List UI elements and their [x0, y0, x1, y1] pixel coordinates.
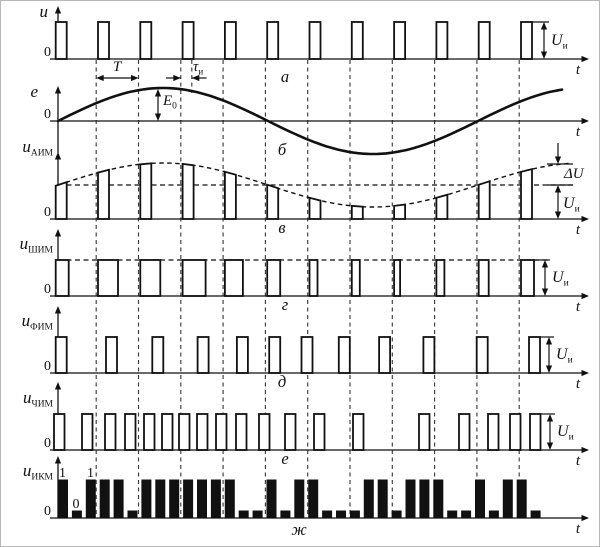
- time-axis-label: t: [576, 222, 581, 238]
- e0-arrow-arrowhead-icon: [155, 89, 161, 97]
- pcm-bar-zero: [323, 511, 332, 518]
- axis-var-label-base: u: [22, 137, 31, 156]
- axis-var-label-sub: ФИМ: [30, 323, 53, 333]
- axis-var-label-base: u: [20, 234, 29, 253]
- pcm-bar-zero: [128, 511, 137, 518]
- aim-pulse: [352, 206, 363, 219]
- delta-label: ΔU: [563, 166, 585, 182]
- ppm-pulse: [339, 337, 350, 373]
- amplitude-arrow-arrowhead-icon: [541, 22, 547, 30]
- pwm-pulse: [352, 260, 360, 296]
- carrier-pulse: [98, 22, 109, 59]
- time-axis-arrowhead-icon: [582, 56, 590, 62]
- pcm-bar-one: [184, 480, 193, 518]
- pfm-pulse: [125, 414, 136, 450]
- aim-pulse: [436, 195, 447, 219]
- axis-var-label-sub: АИМ: [31, 149, 54, 159]
- axis-var-label-sub: ЧИМ: [32, 400, 54, 410]
- aim-pulse: [98, 170, 109, 219]
- bit-label: 0: [73, 497, 80, 512]
- aim-pulse: [140, 163, 151, 219]
- pwm-pulse: [310, 260, 318, 296]
- axis-var-label-base: u: [23, 461, 32, 480]
- pcm-bar-one: [198, 480, 207, 518]
- pulse-width-label: τи: [193, 59, 203, 77]
- pcm-bar-one: [295, 480, 304, 518]
- amplitude-arrow-arrowhead-icon: [541, 52, 547, 60]
- axis-var-label-sub: ИКМ: [31, 473, 53, 483]
- amplitude-arrow-arrowhead-icon: [547, 443, 553, 451]
- panel-letter: ж: [291, 520, 307, 539]
- panel-letter: д: [278, 372, 286, 391]
- carrier-pulse: [140, 22, 151, 59]
- tau-arrowhead-icon: [173, 75, 181, 81]
- pcm-bar-one: [114, 480, 123, 518]
- carrier-pulse: [352, 22, 363, 59]
- amplitude-label: Uи: [552, 269, 569, 289]
- pwm-pulse: [183, 260, 206, 296]
- axis-var-label: uАИМ: [22, 137, 53, 159]
- period-arrow-arrowhead-icon: [96, 75, 104, 81]
- pcm-bar-one: [225, 480, 234, 518]
- carrier-pulse: [267, 22, 278, 59]
- carrier-pulse: [56, 22, 67, 59]
- pfm-pulse: [510, 414, 521, 450]
- pwm-pulse: [479, 260, 489, 296]
- zero-label: 0: [44, 107, 51, 122]
- pfm-pulse: [54, 414, 65, 450]
- panel-letter: г: [282, 295, 289, 314]
- pcm-bar-zero: [462, 511, 471, 518]
- ppm-pulse: [106, 337, 117, 373]
- pcm-bar-one: [59, 480, 68, 518]
- panel-letter: е: [281, 449, 288, 468]
- time-axis-label: t: [576, 124, 581, 140]
- pcm-bar-zero: [239, 511, 248, 518]
- ppm-pulse: [269, 337, 280, 373]
- time-axis-arrowhead-icon: [582, 216, 590, 222]
- amplitude-arrow-arrowhead-icon: [547, 414, 553, 422]
- amplitude-label: Uи: [556, 346, 573, 366]
- amplitude-arrow-arrowhead-icon: [555, 212, 561, 220]
- amplitude-arrow-arrowhead-icon: [555, 185, 561, 193]
- pulse-modulation-figure: t0uTτиUиt0eE0t0uАИМΔUUиt0uШИМUиt0uФИМUиt…: [0, 0, 600, 547]
- time-axis-label: t: [576, 521, 581, 537]
- pcm-bar-one: [86, 480, 95, 518]
- pcm-bar-one: [420, 480, 429, 518]
- pfm-pulse: [144, 414, 155, 450]
- pulse-width-label-sub: и: [198, 67, 203, 77]
- pfm-pulse: [236, 414, 247, 450]
- axis-var-label: uФИМ: [22, 311, 54, 333]
- aim-pulse: [225, 172, 236, 219]
- pwm-pulse: [436, 260, 444, 296]
- aim-pulse: [56, 182, 67, 219]
- pcm-bar-one: [267, 480, 276, 518]
- pfm-pulse: [419, 414, 430, 450]
- e0-label-sub: 0: [172, 102, 177, 112]
- pcm-bar-one: [156, 480, 165, 518]
- value-axis-arrowhead-icon: [55, 86, 61, 94]
- amplitude-label-sub: и: [569, 433, 574, 443]
- aim-pulse: [479, 181, 490, 219]
- panel-letter: в: [278, 218, 285, 237]
- panel-letter: а: [281, 67, 289, 86]
- ppm-pulse: [198, 337, 209, 373]
- pfm-pulse: [216, 414, 227, 450]
- value-axis-arrowhead-icon: [55, 229, 61, 237]
- pcm-bar-zero: [448, 511, 457, 518]
- amplitude-arrow-arrowhead-icon: [542, 289, 548, 297]
- bit-label: 1: [59, 466, 66, 481]
- aim-pulse: [310, 198, 321, 219]
- zero-label: 0: [44, 282, 51, 297]
- carrier-pulse: [310, 22, 321, 59]
- e0-label: E0: [162, 93, 177, 112]
- e0-label-base: E: [162, 93, 172, 109]
- amplitude-label: Uи: [563, 195, 580, 215]
- amplitude-label: Uи: [557, 423, 574, 443]
- axis-var-label: uЧИМ: [23, 388, 54, 410]
- axis-var-label-base: u: [22, 311, 31, 330]
- pcm-bar-zero: [350, 511, 359, 518]
- pfm-pulse: [259, 414, 270, 450]
- ppm-pulse: [237, 337, 248, 373]
- axis-var-label: uШИМ: [20, 234, 54, 256]
- ppm-pulse: [529, 337, 540, 373]
- ppm-pulse: [423, 337, 434, 373]
- carrier-pulse: [436, 22, 447, 59]
- amplitude-arrow-arrowhead-icon: [542, 260, 548, 268]
- axis-var-label: uИКМ: [23, 461, 54, 483]
- axis-var-label-sub: ШИМ: [28, 246, 53, 256]
- pcm-bar-one: [309, 480, 318, 518]
- pfm-pulse: [162, 414, 173, 450]
- pwm-pulse: [521, 260, 534, 296]
- pcm-bar-zero: [489, 511, 498, 518]
- pcm-bar-one: [100, 480, 109, 518]
- amplitude-label-sub: и: [568, 356, 573, 366]
- pfm-pulse: [179, 414, 190, 450]
- pcm-bar-one: [211, 480, 220, 518]
- ppm-pulse: [152, 337, 163, 373]
- pfm-pulse: [105, 414, 116, 450]
- ppm-pulse: [379, 337, 390, 373]
- pfm-pulse: [459, 414, 470, 450]
- pcm-bar-zero: [281, 511, 290, 518]
- pwm-pulse: [225, 260, 243, 296]
- pcm-bar-zero: [392, 511, 401, 518]
- value-axis-arrowhead-icon: [55, 306, 61, 314]
- value-axis-arrowhead-icon: [55, 6, 61, 14]
- amplitude-label: Uи: [551, 32, 568, 52]
- panel-letter: б: [278, 140, 287, 159]
- zero-label: 0: [44, 359, 51, 374]
- carrier-pulse: [521, 22, 532, 59]
- pcm-bar-zero: [337, 511, 346, 518]
- time-axis-arrowhead-icon: [582, 118, 590, 124]
- pcm-bar-zero: [72, 511, 81, 518]
- carrier-pulse: [394, 22, 405, 59]
- zero-label: 0: [44, 436, 51, 451]
- pcm-bar-one: [517, 480, 526, 518]
- zero-label: 0: [44, 45, 51, 60]
- pfm-pulse: [314, 414, 325, 450]
- carrier-pulse: [225, 22, 236, 59]
- axis-var-label: e: [30, 82, 38, 101]
- time-axis-label: t: [576, 299, 581, 315]
- pfm-pulse: [82, 414, 93, 450]
- time-axis-arrowhead-icon: [582, 515, 590, 521]
- amplitude-label-sub: и: [563, 42, 568, 52]
- delta-arrowhead-icon: [555, 157, 561, 165]
- amplitude-arrow-arrowhead-icon: [546, 337, 552, 345]
- ppm-pulse: [302, 337, 313, 373]
- e0-arrow-arrowhead-icon: [155, 114, 161, 122]
- ppm-pulse: [477, 337, 488, 373]
- pcm-bar-one: [378, 480, 387, 518]
- aim-pulse: [394, 205, 405, 220]
- pcm-bar-one: [503, 480, 512, 518]
- pcm-bar-one: [364, 480, 373, 518]
- aim-pulse: [267, 185, 278, 219]
- pfm-pulse: [197, 414, 208, 450]
- pwm-pulse: [140, 260, 160, 296]
- pcm-bar-one: [170, 480, 179, 518]
- carrier-pulse: [479, 22, 490, 59]
- axis-var-label: u: [40, 2, 49, 21]
- period-arrow-arrowhead-icon: [131, 75, 139, 81]
- time-axis-label: t: [576, 62, 581, 78]
- amplitude-label-sub: и: [564, 279, 569, 289]
- time-axis-arrowhead-icon: [582, 293, 590, 299]
- value-axis-arrowhead-icon: [55, 152, 61, 160]
- zero-label: 0: [44, 504, 51, 519]
- bit-label: 1: [87, 466, 94, 481]
- time-axis-label: t: [576, 453, 581, 469]
- value-axis-arrowhead-icon: [55, 456, 61, 464]
- pwm-pulse: [56, 260, 69, 296]
- time-axis-arrowhead-icon: [582, 370, 590, 376]
- zero-label: 0: [44, 205, 51, 220]
- time-axis-label: t: [576, 376, 581, 392]
- amplitude-arrow-arrowhead-icon: [546, 366, 552, 374]
- pcm-bar-one: [476, 480, 485, 518]
- pfm-pulse: [530, 414, 541, 450]
- pfm-pulse: [353, 414, 364, 450]
- pcm-bar-one: [406, 480, 415, 518]
- pcm-bar-zero: [531, 511, 540, 518]
- value-axis-arrowhead-icon: [55, 382, 61, 390]
- pfm-pulse: [285, 414, 296, 450]
- aim-pulse: [521, 169, 532, 219]
- ppm-pulse: [56, 337, 67, 373]
- pcm-bar-one: [434, 480, 443, 518]
- time-axis-arrowhead-icon: [582, 447, 590, 453]
- pwm-pulse: [394, 260, 400, 296]
- amplitude-label-sub: и: [575, 205, 580, 215]
- pcm-bar-zero: [253, 511, 262, 518]
- pcm-bar-one: [142, 480, 151, 518]
- period-label: T: [113, 59, 123, 75]
- aim-pulse: [183, 164, 194, 219]
- pfm-pulse: [488, 414, 499, 450]
- pwm-pulse: [98, 260, 118, 296]
- axis-var-label-base: u: [23, 388, 32, 407]
- pwm-pulse: [267, 260, 280, 296]
- waveform-canvas: t0uTτиUиt0eE0t0uАИМΔUUиt0uШИМUиt0uФИМUиt…: [1, 1, 600, 547]
- carrier-pulse: [183, 22, 194, 59]
